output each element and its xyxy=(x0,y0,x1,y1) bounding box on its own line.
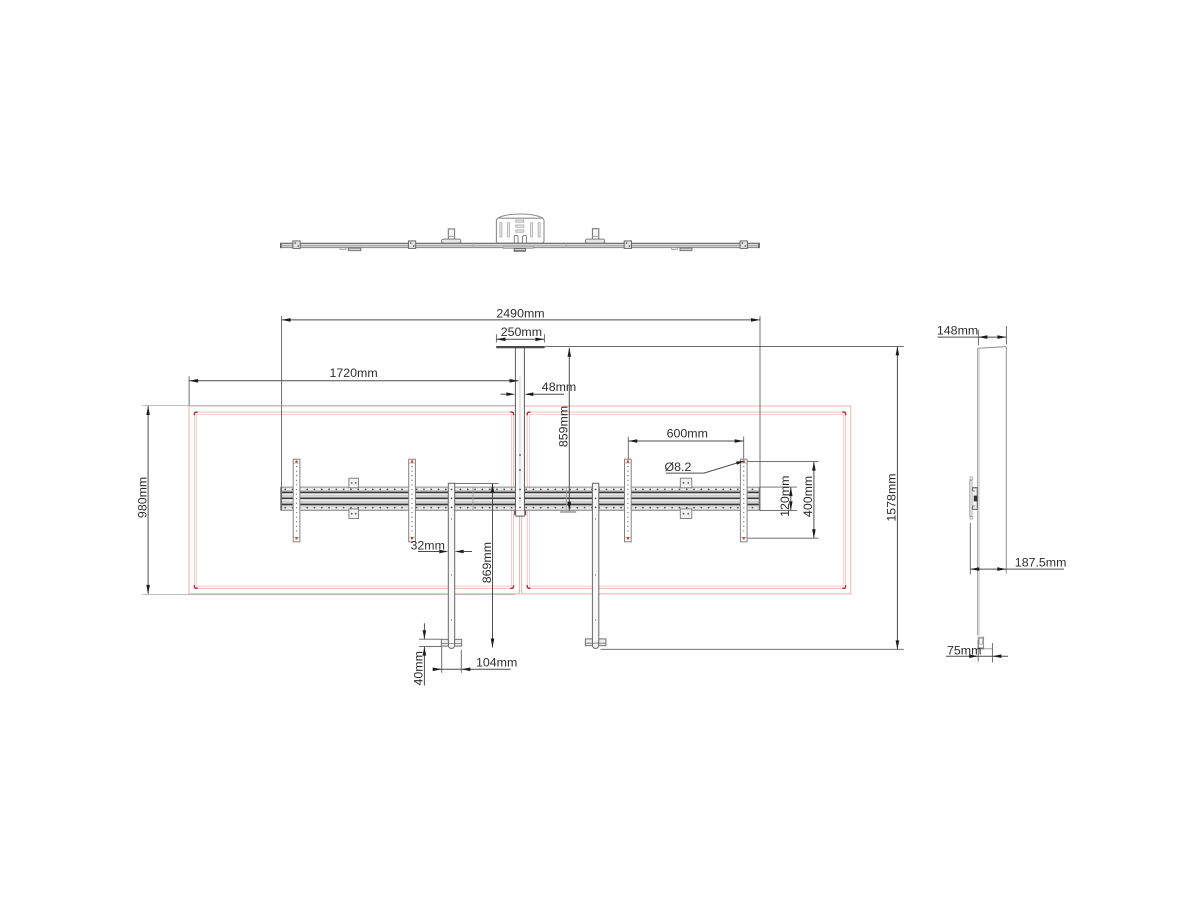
svg-text:32mm: 32mm xyxy=(411,538,445,552)
svg-text:869mm: 869mm xyxy=(480,542,494,583)
svg-text:2490mm: 2490mm xyxy=(496,307,544,321)
svg-text:400mm: 400mm xyxy=(801,476,815,517)
svg-text:187.5mm: 187.5mm xyxy=(1015,555,1067,569)
svg-text:48mm: 48mm xyxy=(542,380,576,394)
svg-text:120mm: 120mm xyxy=(778,476,792,517)
svg-text:148mm: 148mm xyxy=(937,323,978,337)
svg-text:104mm: 104mm xyxy=(476,656,517,670)
svg-text:Ø8.2: Ø8.2 xyxy=(665,460,692,474)
svg-text:980mm: 980mm xyxy=(135,477,149,518)
svg-text:859mm: 859mm xyxy=(557,406,571,447)
svg-text:1720mm: 1720mm xyxy=(329,366,377,380)
svg-text:1578mm: 1578mm xyxy=(885,473,899,521)
svg-text:600mm: 600mm xyxy=(667,427,708,441)
svg-text:40mm: 40mm xyxy=(412,651,426,685)
svg-text:250mm: 250mm xyxy=(501,325,542,339)
svg-text:75mm: 75mm xyxy=(947,643,981,657)
